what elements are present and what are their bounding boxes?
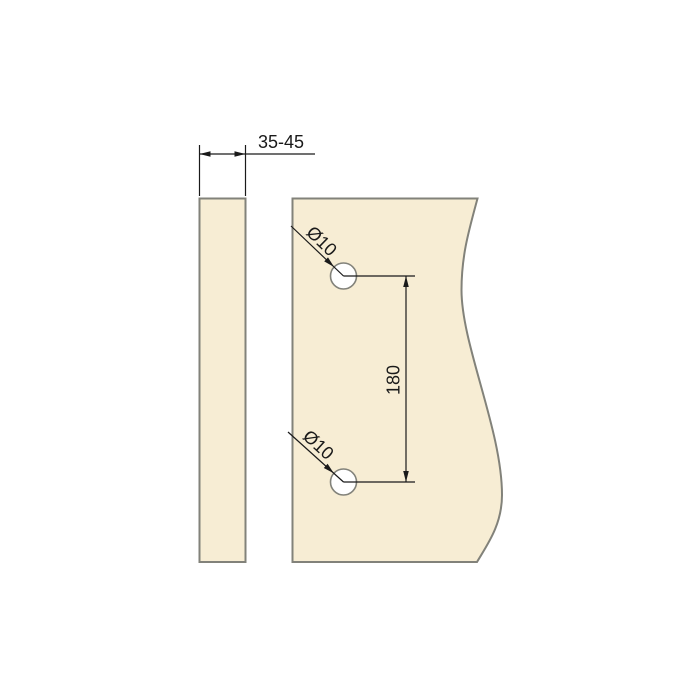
thickness-dimension: 35-45 bbox=[200, 132, 316, 196]
drawing-canvas: 35-45 Ø10 Ø10 180 bbox=[0, 0, 700, 700]
side-view-panel bbox=[200, 199, 246, 563]
technical-drawing: 35-45 Ø10 Ø10 180 bbox=[0, 0, 700, 700]
spacing-label: 180 bbox=[384, 365, 404, 395]
arrow-right-icon bbox=[235, 151, 246, 157]
thickness-label: 35-45 bbox=[258, 132, 304, 152]
arrow-left-icon bbox=[200, 151, 211, 157]
